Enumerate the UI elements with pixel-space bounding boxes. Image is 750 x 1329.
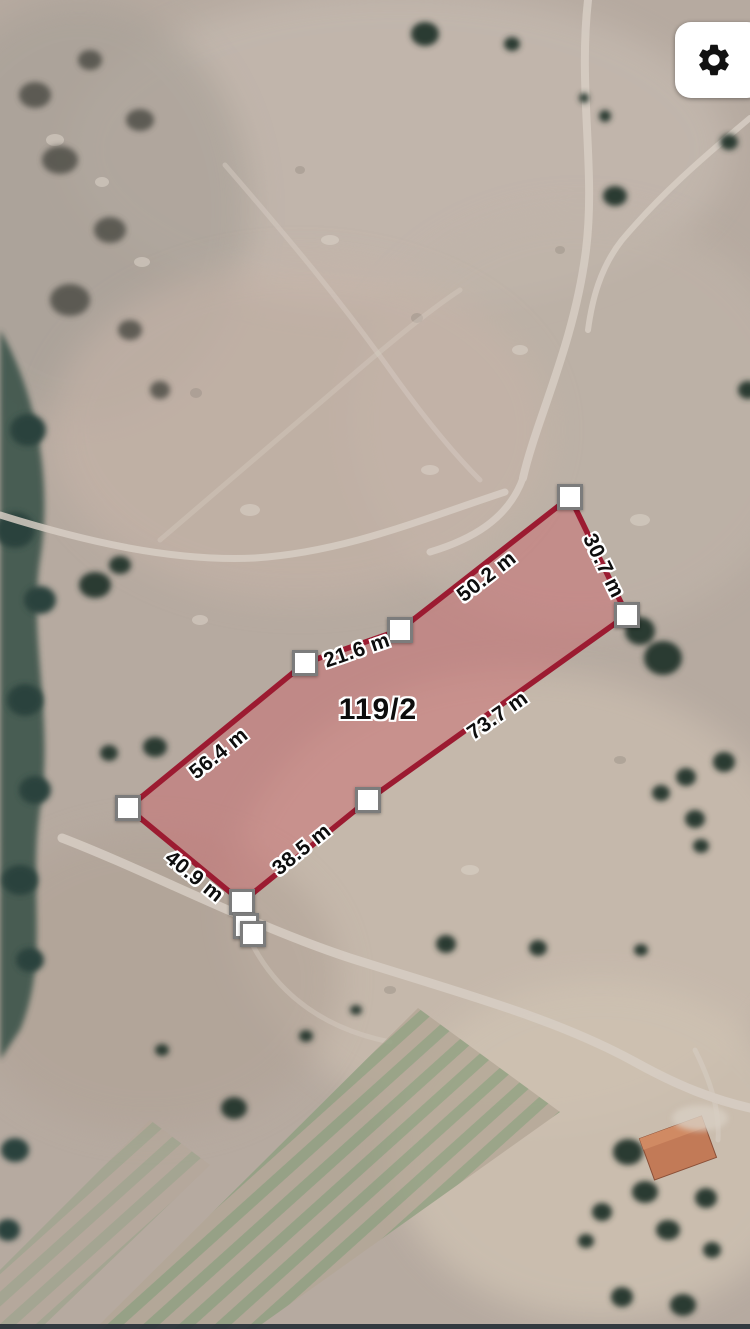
parcel-id-label: 119/2 (339, 693, 417, 727)
vertex-marker[interactable] (614, 602, 640, 628)
satellite-map[interactable] (0, 0, 750, 1329)
vertex-marker[interactable] (115, 795, 141, 821)
vertex-marker[interactable] (557, 484, 583, 510)
bottom-edge-bar (0, 1324, 750, 1329)
gear-icon (695, 41, 733, 79)
settings-button[interactable] (675, 22, 750, 98)
vertex-marker-active[interactable] (240, 921, 266, 947)
vertex-marker[interactable] (229, 889, 255, 915)
map-screen: 56.4 m 21.6 m 50.2 m 30.7 m 73.7 m 38.5 … (0, 0, 750, 1329)
vertex-marker[interactable] (387, 617, 413, 643)
vertex-marker[interactable] (292, 650, 318, 676)
vertex-marker[interactable] (355, 787, 381, 813)
